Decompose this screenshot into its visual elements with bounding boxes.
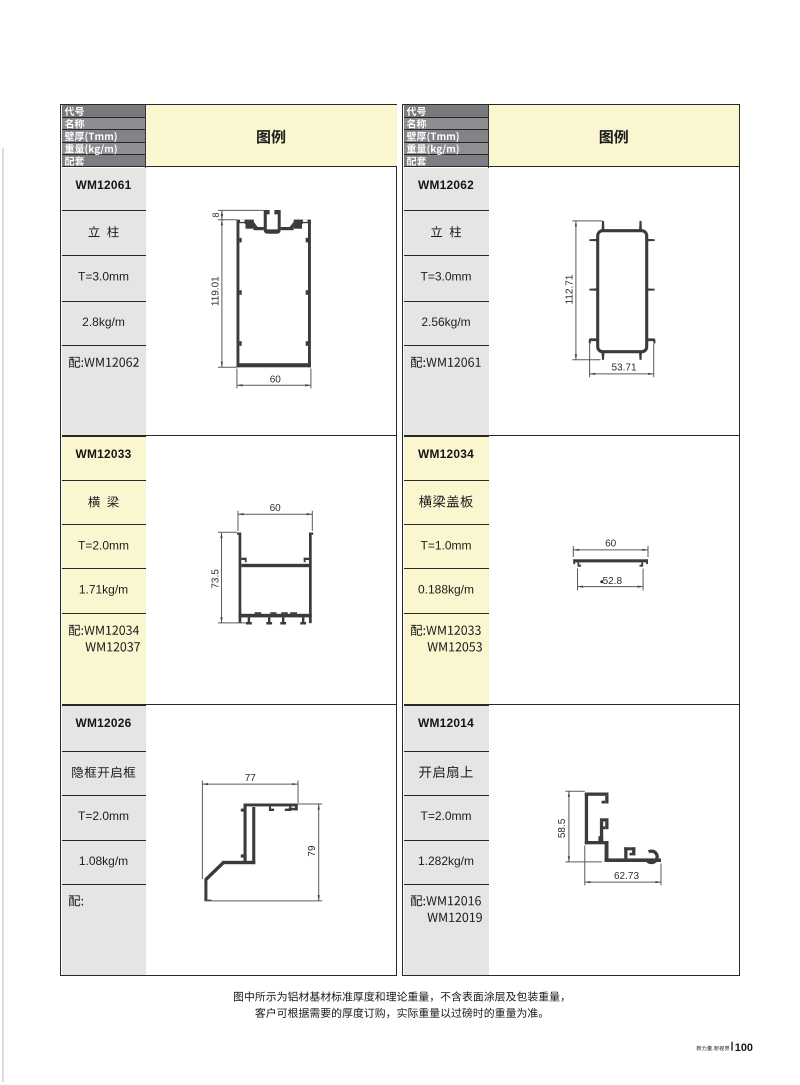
svg-text:T=2.0mm: T=2.0mm: [420, 809, 471, 823]
svg-text:100: 100: [735, 1042, 753, 1054]
svg-text:52.8: 52.8: [603, 576, 623, 587]
svg-text:0.188kg/m: 0.188kg/m: [418, 583, 474, 597]
svg-text:WM12033: WM12033: [76, 447, 132, 461]
svg-text:2.8kg/m: 2.8kg/m: [82, 315, 125, 329]
svg-text:73.5: 73.5: [211, 569, 222, 589]
svg-text:1.71kg/m: 1.71kg/m: [79, 583, 128, 597]
svg-text:119.01: 119.01: [211, 276, 222, 306]
svg-text:77: 77: [245, 773, 257, 784]
svg-text:T=2.0mm: T=2.0mm: [78, 539, 129, 553]
svg-text:62.73: 62.73: [614, 871, 639, 882]
svg-text:79: 79: [307, 845, 318, 857]
svg-text:WM12061: WM12061: [76, 178, 132, 192]
svg-text:112.71: 112.71: [565, 274, 576, 304]
svg-text:2.56kg/m: 2.56kg/m: [421, 315, 470, 329]
svg-text:WM12034: WM12034: [418, 447, 474, 461]
svg-text:T=3.0mm: T=3.0mm: [420, 270, 471, 284]
svg-text:60: 60: [270, 374, 282, 385]
svg-text:8: 8: [211, 212, 221, 217]
svg-text:WM12026: WM12026: [76, 716, 132, 730]
svg-text:T=2.0mm: T=2.0mm: [78, 809, 129, 823]
svg-text:T=1.0mm: T=1.0mm: [420, 539, 471, 553]
svg-text:1.282kg/m: 1.282kg/m: [418, 854, 474, 868]
svg-text:60: 60: [270, 503, 282, 514]
svg-text:WM12062: WM12062: [418, 178, 474, 192]
svg-text:1.08kg/m: 1.08kg/m: [79, 854, 128, 868]
svg-text:T=3.0mm: T=3.0mm: [78, 270, 129, 284]
svg-text:WM12014: WM12014: [418, 716, 474, 730]
svg-text:60: 60: [605, 539, 617, 550]
svg-text:58.5: 58.5: [557, 818, 568, 838]
svg-text:53.71: 53.71: [611, 363, 636, 374]
